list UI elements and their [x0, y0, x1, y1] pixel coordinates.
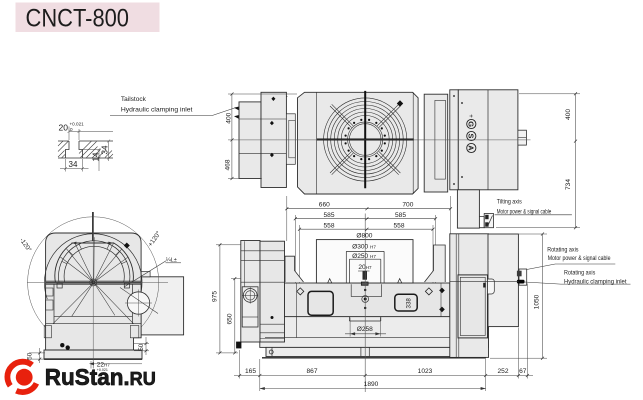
- svg-text:RuStan.RU: RuStan.RU: [45, 364, 156, 390]
- svg-text:338: 338: [406, 298, 413, 309]
- svg-text:975: 975: [212, 291, 219, 302]
- svg-text:400: 400: [565, 109, 572, 120]
- svg-text:Tilting axis: Tilting axis: [497, 199, 522, 206]
- svg-text:660: 660: [319, 202, 330, 209]
- svg-text:Ø258: Ø258: [357, 326, 373, 333]
- svg-text:585: 585: [395, 212, 406, 219]
- svg-text:34: 34: [69, 160, 78, 169]
- svg-text:Rotating axis: Rotating axis: [547, 247, 578, 254]
- svg-text:20H7: 20H7: [358, 264, 372, 271]
- svg-text:468: 468: [225, 159, 232, 170]
- svg-text:+0.021: +0.021: [70, 122, 85, 127]
- svg-text:1890: 1890: [364, 381, 379, 388]
- svg-text:165: 165: [245, 368, 256, 375]
- svg-text:Hydraulic clamping inlet: Hydraulic clamping inlet: [121, 106, 193, 113]
- svg-text:1023: 1023: [418, 368, 433, 375]
- svg-text:Rotating axis: Rotating axis: [564, 269, 595, 276]
- svg-text:558: 558: [323, 222, 334, 229]
- svg-text:252: 252: [497, 368, 508, 375]
- svg-text:Tailstock: Tailstock: [121, 96, 147, 103]
- svg-text:1050: 1050: [534, 294, 541, 309]
- svg-text:700: 700: [402, 202, 413, 209]
- svg-text:+: +: [467, 114, 473, 118]
- svg-text:Ø800: Ø800: [356, 233, 372, 240]
- svg-text:50: 50: [138, 343, 145, 351]
- svg-text:558: 558: [393, 222, 404, 229]
- svg-text:400: 400: [226, 112, 233, 123]
- svg-text:Ø250 H7: Ø250 H7: [352, 253, 376, 260]
- svg-text:S: S: [467, 134, 476, 139]
- svg-text:A: A: [467, 145, 476, 151]
- svg-text:20: 20: [59, 123, 69, 133]
- svg-text:50: 50: [27, 352, 34, 360]
- svg-text:Motor power & signal cable: Motor power & signal cable: [548, 255, 611, 262]
- svg-text:Ø300 H7: Ø300 H7: [352, 243, 376, 250]
- svg-text:CNCT-800: CNCT-800: [26, 4, 130, 32]
- svg-text:34: 34: [100, 145, 109, 154]
- svg-text:67: 67: [519, 368, 527, 375]
- svg-text:G: G: [467, 121, 476, 127]
- svg-text:585: 585: [323, 212, 334, 219]
- svg-text:Motor power & signal cable: Motor power & signal cable: [497, 209, 552, 216]
- svg-text:0: 0: [70, 127, 73, 132]
- svg-text:650: 650: [227, 313, 234, 324]
- svg-text:14: 14: [91, 152, 100, 161]
- svg-text:734: 734: [565, 179, 572, 190]
- svg-text:867: 867: [306, 368, 317, 375]
